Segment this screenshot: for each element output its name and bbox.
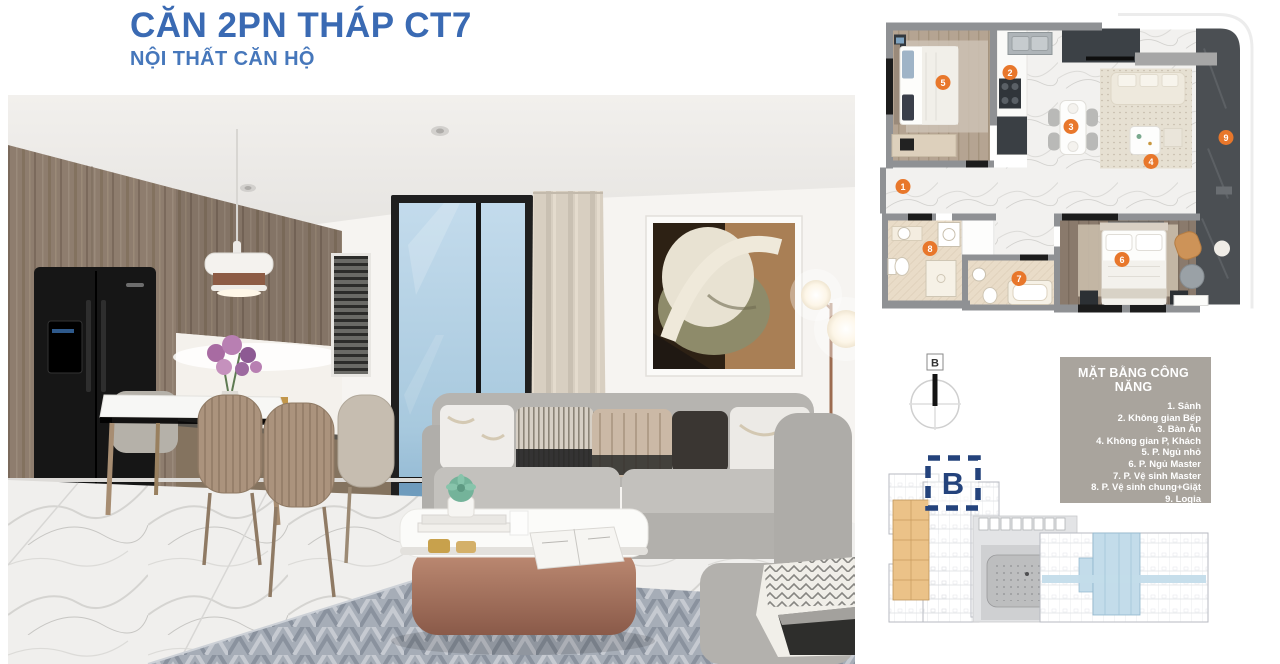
legend-item: 1. Sảnh <box>1066 401 1201 413</box>
fridge-dispenser <box>48 321 82 373</box>
plan-marker-3: 3 <box>1064 119 1079 134</box>
svg-text:8: 8 <box>927 244 932 254</box>
plan-marker-1: 1 <box>896 179 911 194</box>
apartment-floorplan: 1 2 3 4 5 6 7 8 9 <box>878 6 1264 341</box>
gold-cup <box>428 539 450 553</box>
svg-text:1: 1 <box>900 182 905 192</box>
louvered-blind <box>334 256 368 374</box>
svg-text:3: 3 <box>1068 122 1073 132</box>
plan-marker-8: 8 <box>923 241 938 256</box>
page-title: CĂN 2PN THÁP CT7 <box>130 6 472 46</box>
page-subtitle: NỘI THẤT CĂN HỘ <box>130 48 472 71</box>
dining-chair <box>198 395 262 493</box>
legend-item: 2. Không gian Bếp <box>1066 413 1201 425</box>
compass-label: B <box>931 358 939 370</box>
brochure-page: CĂN 2PN THÁP CT7 NỘI THẤT CĂN HỘ <box>0 0 1280 664</box>
legend-title: MẶT BẰNG CÔNG NĂNG <box>1066 366 1201 394</box>
ottoman <box>700 557 855 664</box>
block-b-marker: B <box>928 458 978 508</box>
plan-marker-5: 5 <box>936 75 951 90</box>
corridor-highlight <box>1042 575 1206 583</box>
tv-console <box>1135 53 1217 66</box>
glass <box>510 511 528 535</box>
laundry-nook <box>962 220 994 260</box>
legend-item: 4. Không gian P, Khách <box>1066 436 1201 448</box>
svg-text:9: 9 <box>1223 133 1228 143</box>
svg-text:5: 5 <box>940 78 945 88</box>
balcony-table <box>1214 241 1230 257</box>
floorplan-drawing: 1 2 3 4 5 6 7 8 9 <box>878 6 1264 341</box>
svg-text:4: 4 <box>1148 157 1153 167</box>
gold-cup <box>456 541 476 553</box>
compass: B <box>903 352 967 446</box>
highlight-block-blue <box>1093 533 1140 615</box>
wall-art <box>646 216 802 376</box>
plan-marker-7: 7 <box>1012 271 1027 286</box>
svg-text:2: 2 <box>1007 68 1012 78</box>
title-block: CĂN 2PN THÁP CT7 NỘI THẤT CĂN HỘ <box>130 6 472 71</box>
interior-photo <box>8 95 855 664</box>
legend-item: 3. Bàn Ăn <box>1066 424 1201 436</box>
svg-text:6: 6 <box>1119 255 1124 265</box>
dining-chair <box>338 395 394 487</box>
block-b-label: B <box>942 466 964 501</box>
plan-marker-4: 4 <box>1144 154 1159 169</box>
plan-marker-2: 2 <box>1003 65 1018 80</box>
living-furniture <box>1100 69 1192 169</box>
compass-needle <box>933 374 938 406</box>
tv <box>1086 57 1134 61</box>
dining-chair <box>264 403 334 507</box>
right-wing <box>1040 533 1208 622</box>
site-plan: B <box>883 452 1215 637</box>
room-balcony <box>1196 29 1240 305</box>
pillow <box>672 411 728 473</box>
interior-photo-art <box>8 95 855 664</box>
plan-marker-6: 6 <box>1115 252 1130 267</box>
svg-text:7: 7 <box>1016 274 1021 284</box>
plan-marker-9: 9 <box>1219 130 1234 145</box>
